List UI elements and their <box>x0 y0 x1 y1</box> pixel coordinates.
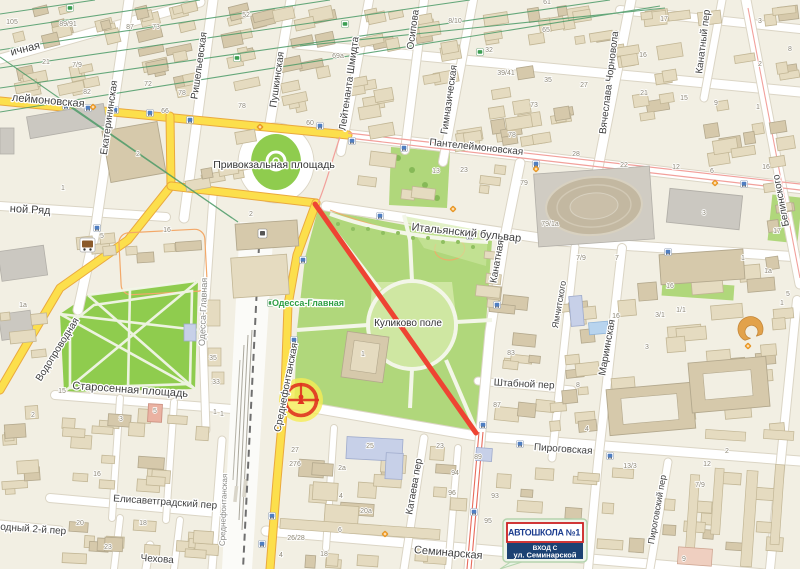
svg-text:73: 73 <box>530 102 538 109</box>
svg-text:93: 93 <box>491 493 499 500</box>
svg-text:27: 27 <box>580 82 588 89</box>
svg-text:1: 1 <box>780 300 784 307</box>
svg-text:13: 13 <box>432 168 440 175</box>
svg-text:2: 2 <box>758 61 762 68</box>
svg-text:7: 7 <box>615 255 619 262</box>
svg-text:18: 18 <box>139 520 147 527</box>
svg-text:9: 9 <box>714 100 718 107</box>
svg-text:1: 1 <box>220 411 224 418</box>
svg-text:72: 72 <box>144 81 152 88</box>
svg-text:18: 18 <box>320 551 328 558</box>
svg-text:3/1: 3/1 <box>655 312 665 319</box>
svg-text:21: 21 <box>42 59 50 66</box>
svg-text:12: 12 <box>703 461 711 468</box>
svg-text:17: 17 <box>660 16 668 23</box>
svg-text:61: 61 <box>543 0 551 6</box>
svg-text:32: 32 <box>485 47 493 54</box>
svg-text:73: 73 <box>152 24 160 31</box>
svg-text:276: 276 <box>289 461 301 468</box>
svg-text:60: 60 <box>306 120 314 127</box>
svg-text:33: 33 <box>212 379 220 386</box>
svg-text:3: 3 <box>758 18 762 25</box>
svg-text:9: 9 <box>682 556 686 563</box>
svg-text:69а: 69а <box>332 53 344 60</box>
svg-text:5: 5 <box>100 233 104 240</box>
svg-text:35: 35 <box>544 77 552 84</box>
svg-text:Привокзальная площадь: Привокзальная площадь <box>213 159 335 171</box>
svg-text:83: 83 <box>507 350 515 357</box>
svg-text:95: 95 <box>484 518 492 525</box>
svg-text:Чехова: Чехова <box>140 553 174 566</box>
svg-text:8/10: 8/10 <box>448 18 462 25</box>
svg-text:3: 3 <box>119 416 123 423</box>
svg-text:79/1а: 79/1а <box>541 221 559 228</box>
svg-text:15: 15 <box>58 388 66 395</box>
svg-text:5: 5 <box>786 291 790 298</box>
svg-text:89/91: 89/91 <box>59 21 77 28</box>
svg-text:89: 89 <box>474 454 482 461</box>
svg-text:20а: 20а <box>360 508 372 515</box>
svg-text:27: 27 <box>291 447 299 454</box>
svg-text:16: 16 <box>163 227 171 234</box>
svg-text:6: 6 <box>338 527 342 534</box>
svg-text:4: 4 <box>339 493 343 500</box>
svg-text:52: 52 <box>242 12 250 19</box>
svg-text:3: 3 <box>702 210 706 217</box>
svg-text:ной Ряд: ной Ряд <box>9 203 51 217</box>
svg-text:8: 8 <box>576 382 580 389</box>
svg-text:7/9: 7/9 <box>695 482 705 489</box>
svg-text:21: 21 <box>640 90 648 97</box>
svg-text:13/3: 13/3 <box>623 463 637 470</box>
svg-text:4: 4 <box>585 426 589 433</box>
svg-text:16: 16 <box>612 313 620 320</box>
svg-text:2: 2 <box>136 151 140 158</box>
svg-text:3: 3 <box>645 344 649 351</box>
svg-text:1: 1 <box>61 185 65 192</box>
svg-text:7/9: 7/9 <box>576 255 586 262</box>
svg-text:Одесса-Главная: Одесса-Главная <box>272 298 344 308</box>
svg-text:6: 6 <box>710 168 714 175</box>
svg-text:78: 78 <box>238 103 246 110</box>
svg-text:2: 2 <box>249 211 253 218</box>
svg-text:35: 35 <box>209 355 217 362</box>
svg-text:78: 78 <box>508 132 516 139</box>
svg-text:87: 87 <box>126 24 134 31</box>
svg-text:79: 79 <box>520 180 528 187</box>
svg-text:АВТОШКОЛА №1: АВТОШКОЛА №1 <box>508 528 580 538</box>
svg-text:1: 1 <box>741 255 745 262</box>
svg-text:23: 23 <box>460 167 468 174</box>
svg-text:5: 5 <box>153 408 157 415</box>
svg-text:96: 96 <box>448 490 456 497</box>
svg-text:1: 1 <box>756 104 760 111</box>
svg-text:1: 1 <box>361 351 365 358</box>
svg-text:22: 22 <box>620 162 628 169</box>
svg-text:78: 78 <box>178 90 186 97</box>
svg-text:23: 23 <box>436 443 444 450</box>
svg-text:16: 16 <box>666 283 674 290</box>
svg-text:82: 82 <box>83 89 91 96</box>
svg-text:1а: 1а <box>19 302 27 309</box>
svg-text:1: 1 <box>213 409 217 416</box>
svg-text:2: 2 <box>725 448 729 455</box>
svg-text:4: 4 <box>279 552 283 559</box>
svg-text:2: 2 <box>31 412 35 419</box>
svg-text:7/9: 7/9 <box>72 62 82 69</box>
svg-text:26/28: 26/28 <box>287 535 305 542</box>
svg-text:Куликово поле: Куликово поле <box>374 318 442 329</box>
svg-text:23: 23 <box>104 544 112 551</box>
svg-text:39/41: 39/41 <box>497 70 515 77</box>
svg-text:25: 25 <box>366 443 374 450</box>
svg-text:12: 12 <box>672 164 680 171</box>
svg-text:16: 16 <box>762 164 770 171</box>
svg-text:28: 28 <box>572 151 580 158</box>
svg-text:17: 17 <box>773 228 781 235</box>
svg-text:65: 65 <box>542 27 550 34</box>
svg-text:87: 87 <box>493 402 501 409</box>
svg-text:20: 20 <box>76 520 84 527</box>
svg-text:94: 94 <box>451 470 459 477</box>
svg-text:16: 16 <box>639 52 647 59</box>
svg-text:15: 15 <box>680 95 688 102</box>
svg-text:2а: 2а <box>338 465 346 472</box>
svg-text:8: 8 <box>788 46 792 53</box>
svg-text:66: 66 <box>161 108 169 115</box>
svg-text:1/1: 1/1 <box>676 307 686 314</box>
svg-text:ул. Семинарской: ул. Семинарской <box>514 551 577 560</box>
svg-text:105: 105 <box>6 19 18 26</box>
svg-text:16: 16 <box>93 471 101 478</box>
svg-text:1а: 1а <box>764 268 772 275</box>
